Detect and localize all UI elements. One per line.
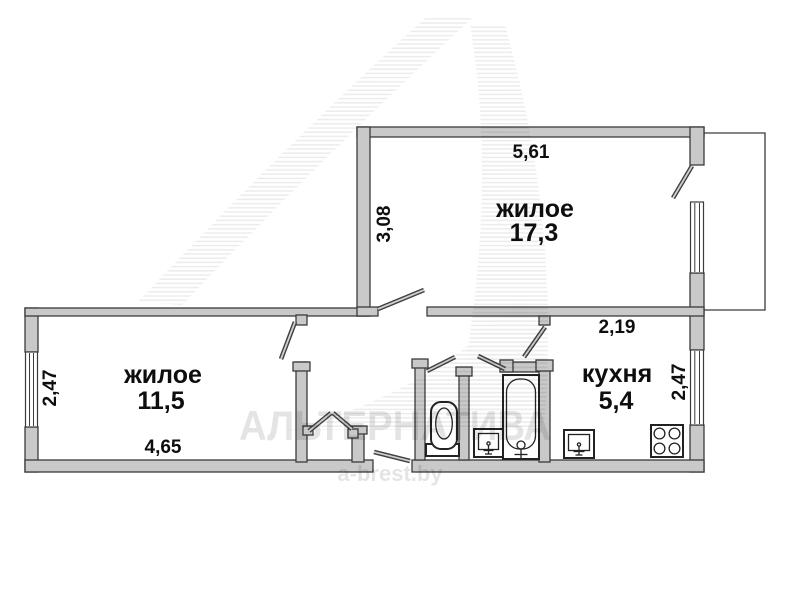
door-jamb — [293, 362, 310, 371]
watermark-brand-text: АЛЬТЕРНАТИВА — [239, 402, 551, 449]
floorplan-image: 5,61 3,08 жилое 17,3 2,47 жилое 11,5 4,6… — [0, 0, 800, 599]
dimension-label: 3,08 — [374, 206, 395, 243]
dimension-label: 2,47 — [669, 364, 690, 401]
wall-segment — [357, 127, 370, 316]
watermark-site-text: a-brest.by — [337, 461, 443, 486]
wall-segment — [25, 308, 370, 316]
wall-segment — [690, 127, 704, 165]
wall-segment — [357, 307, 378, 316]
entrance-door-leaf — [374, 452, 410, 461]
stove-4-burner-icon — [651, 425, 683, 457]
door-leaf-living-left — [281, 322, 295, 359]
wall-segment — [357, 127, 704, 137]
door-jamb — [412, 359, 428, 368]
floorplan-svg: 5,61 3,08 жилое 17,3 2,47 жилое 11,5 4,6… — [0, 0, 800, 599]
wall-segment — [25, 460, 373, 472]
wall-segment — [296, 315, 307, 325]
window — [691, 202, 704, 273]
dimension-label: 4,65 — [145, 437, 182, 458]
door-leaf-balcony — [673, 166, 692, 198]
room-area-label: 11,5 — [137, 387, 184, 415]
window — [691, 350, 704, 425]
dimension-label: 2,47 — [40, 370, 61, 407]
dimension-label: 2,19 — [599, 317, 636, 338]
room-label: кухня — [582, 360, 652, 388]
watermark-swoosh — [138, 18, 472, 305]
sink-icon — [564, 430, 594, 458]
wall-segment — [412, 460, 704, 472]
balcony-outline — [704, 133, 765, 310]
room-area-label: 5,4 — [599, 387, 634, 415]
room-label: жилое — [123, 361, 202, 389]
door-leaf-living-top — [378, 290, 424, 309]
window — [26, 352, 38, 427]
wall-segment — [427, 307, 704, 316]
